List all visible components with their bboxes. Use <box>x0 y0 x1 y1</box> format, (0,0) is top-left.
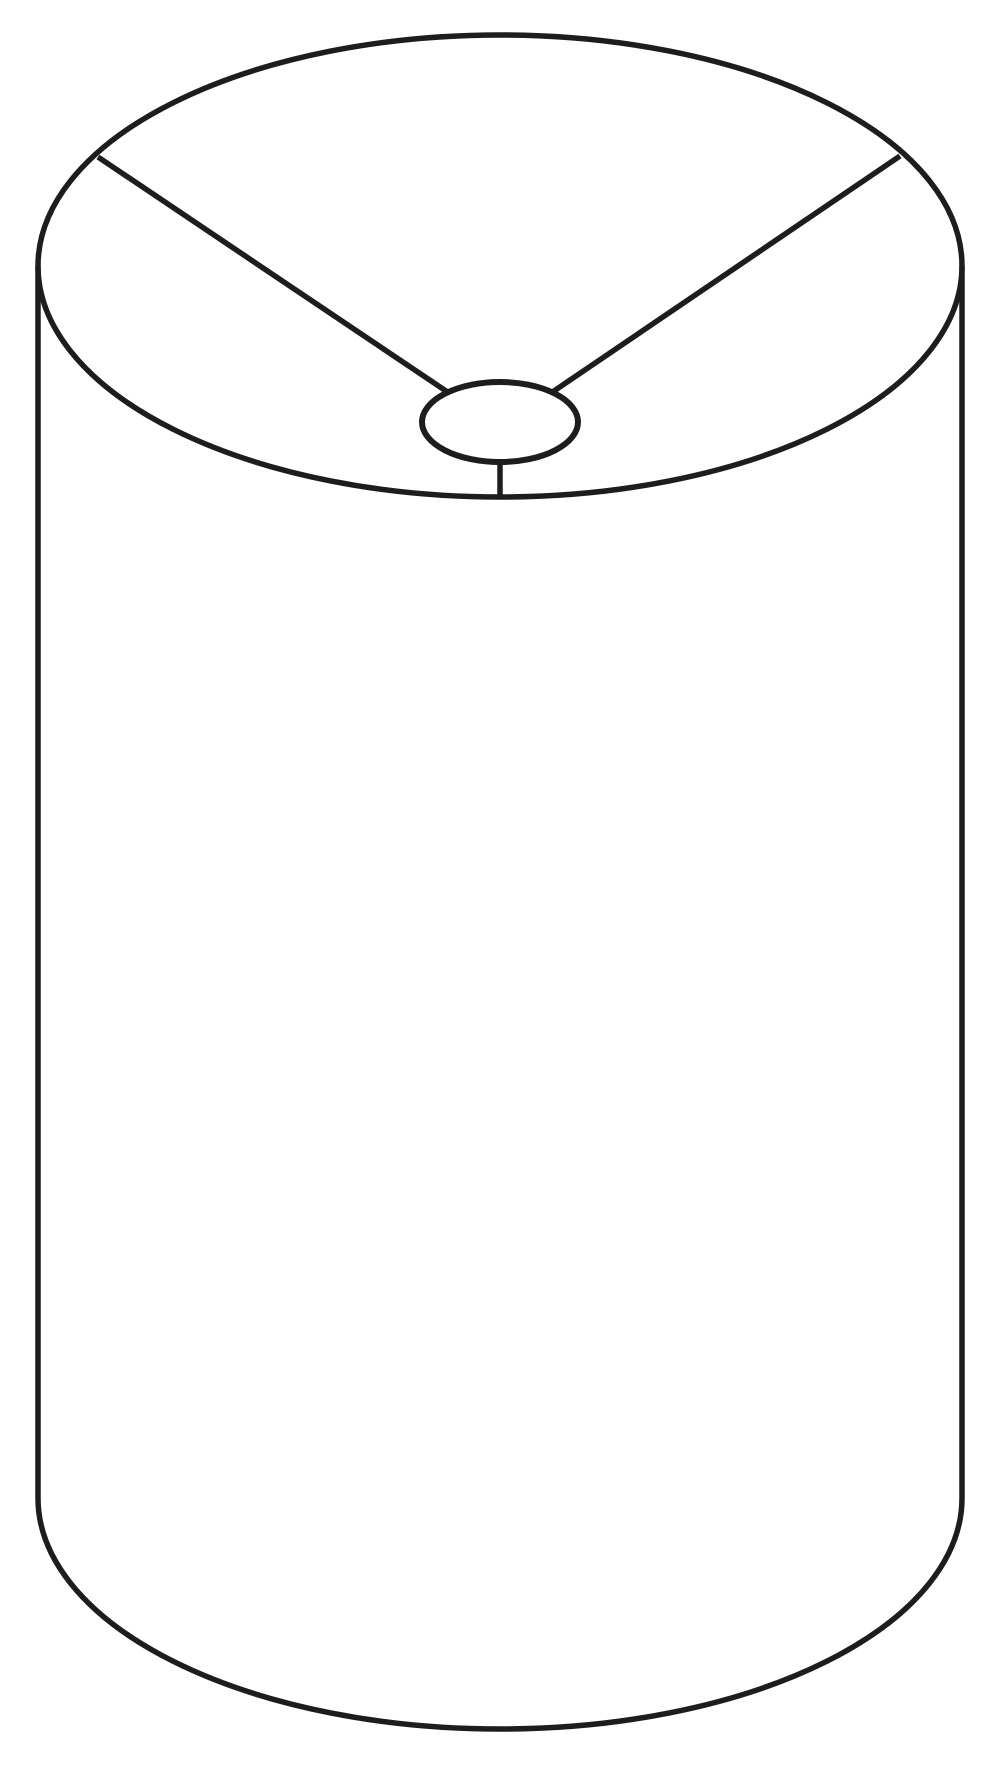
top-rim-ellipse <box>38 35 962 497</box>
bottom-rim-arc <box>38 1498 962 1729</box>
lampshade-illustration <box>0 0 1000 1770</box>
fitter-ring <box>422 382 578 462</box>
spider-arm-right <box>551 156 900 393</box>
spider-arm-left <box>98 157 449 393</box>
page-canvas <box>0 0 1000 1770</box>
